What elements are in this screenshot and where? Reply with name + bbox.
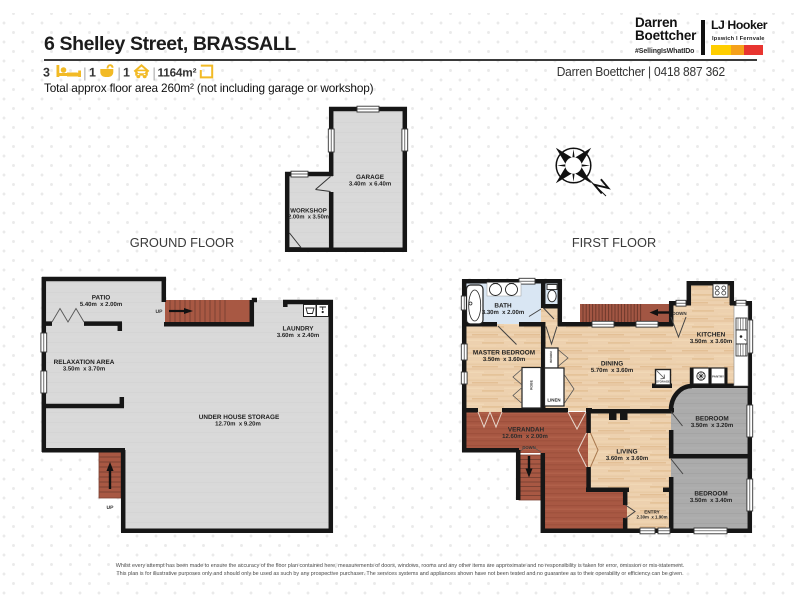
svg-text:PATIO: PATIO <box>92 295 111 302</box>
svg-text:DOWN: DOWN <box>672 311 686 316</box>
svg-text:UP: UP <box>156 309 164 315</box>
svg-text:KITCHEN: KITCHEN <box>697 332 726 339</box>
svg-text:3.50m x 3.70m: 3.50m x 3.70m <box>63 366 105 373</box>
svg-text:3.60m x 3.60m: 3.60m x 3.60m <box>606 455 648 462</box>
svg-text:VERANDAH: VERANDAH <box>508 427 545 434</box>
svg-text:3.40m x 6.40m: 3.40m x 6.40m <box>349 181 391 188</box>
svg-text:GARAGE: GARAGE <box>356 174 385 181</box>
svg-text:2.30m x 1.90m: 2.30m x 1.90m <box>636 515 667 520</box>
svg-text:3.50m x 3.40m: 3.50m x 3.40m <box>690 497 732 504</box>
svg-text:5.40m x 2.00m: 5.40m x 2.00m <box>80 301 122 308</box>
svg-text:LINEN: LINEN <box>547 398 560 403</box>
svg-text:5.70m x 3.60m: 5.70m x 3.60m <box>591 367 633 374</box>
svg-text:3.50m x 3.20m: 3.50m x 3.20m <box>691 422 733 429</box>
svg-text:LIVING: LIVING <box>616 449 637 456</box>
svg-text:2.00m x 3.50m: 2.00m x 3.50m <box>288 214 329 221</box>
svg-text:UNDER HOUSE STORAGE: UNDER HOUSE STORAGE <box>199 414 280 421</box>
svg-text:12.60m x 2.00m: 12.60m x 2.00m <box>502 433 548 440</box>
svg-text:RELAXATION AREA: RELAXATION AREA <box>54 359 115 366</box>
svg-text:WORKSHOP: WORKSHOP <box>290 208 327 215</box>
svg-text:3.60m x 2.40m: 3.60m x 2.40m <box>277 332 319 339</box>
svg-text:DINING: DINING <box>601 361 623 368</box>
svg-text:3.50m x 3.60m: 3.50m x 3.60m <box>483 356 525 363</box>
svg-text:12.70m x 9.20m: 12.70m x 9.20m <box>215 421 261 428</box>
svg-text:3.30m x 2.00m: 3.30m x 2.00m <box>482 309 524 316</box>
svg-text:BATH: BATH <box>494 303 512 310</box>
svg-text:UP: UP <box>107 505 115 511</box>
svg-text:STORAGE: STORAGE <box>656 380 670 384</box>
svg-text:BROOM: BROOM <box>549 351 553 363</box>
svg-text:MASTER BEDROOM: MASTER BEDROOM <box>473 350 535 357</box>
svg-text:LAUNDRY: LAUNDRY <box>282 326 314 333</box>
svg-text:ROBE: ROBE <box>530 379 534 390</box>
svg-text:3.50m x 3.60m: 3.50m x 3.60m <box>690 338 732 345</box>
svg-text:PANTRY: PANTRY <box>712 375 724 379</box>
svg-text:BEDROOM: BEDROOM <box>694 491 727 498</box>
svg-text:BEDROOM: BEDROOM <box>695 416 728 423</box>
